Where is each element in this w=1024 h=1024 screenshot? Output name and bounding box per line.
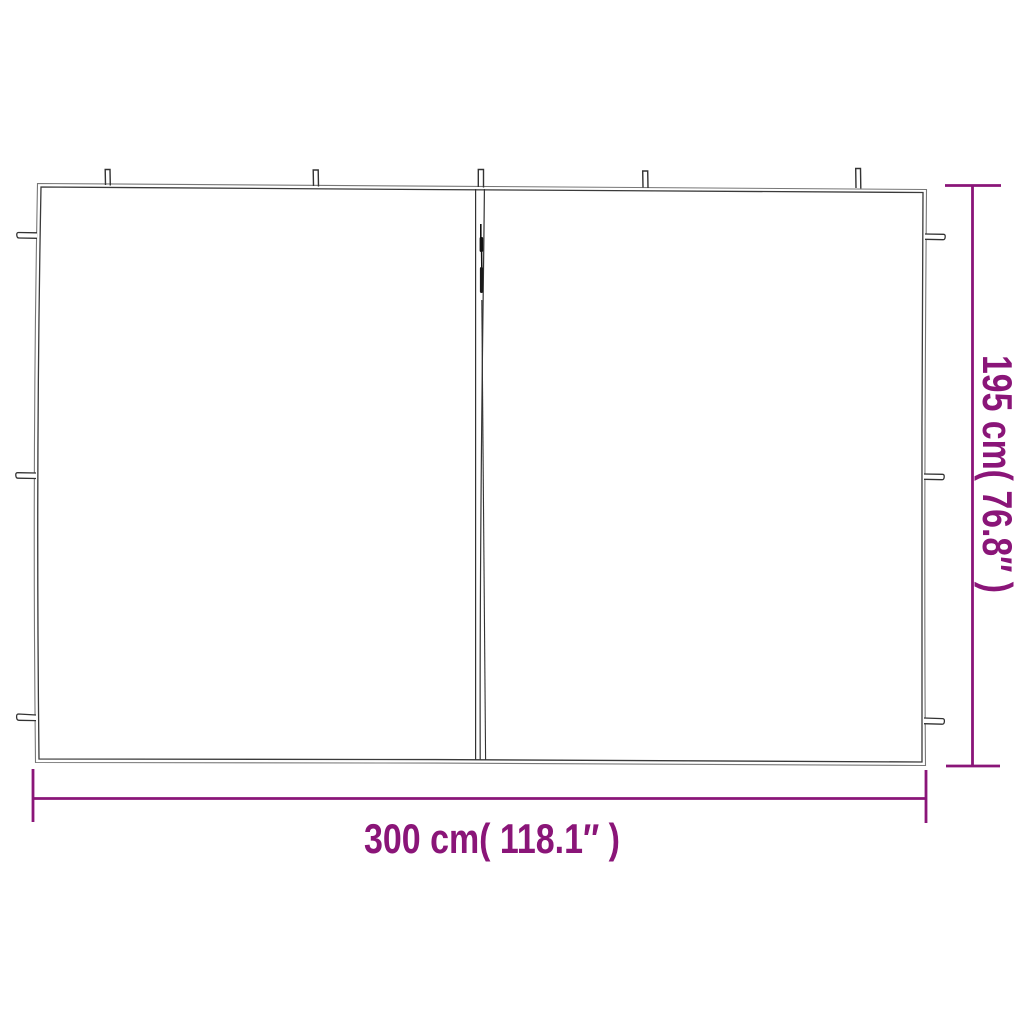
svg-text:195 cm( 76.8″ ): 195 cm( 76.8″ )	[974, 355, 1021, 593]
svg-text:300 cm( 118.1″ ): 300 cm( 118.1″ )	[364, 815, 620, 862]
